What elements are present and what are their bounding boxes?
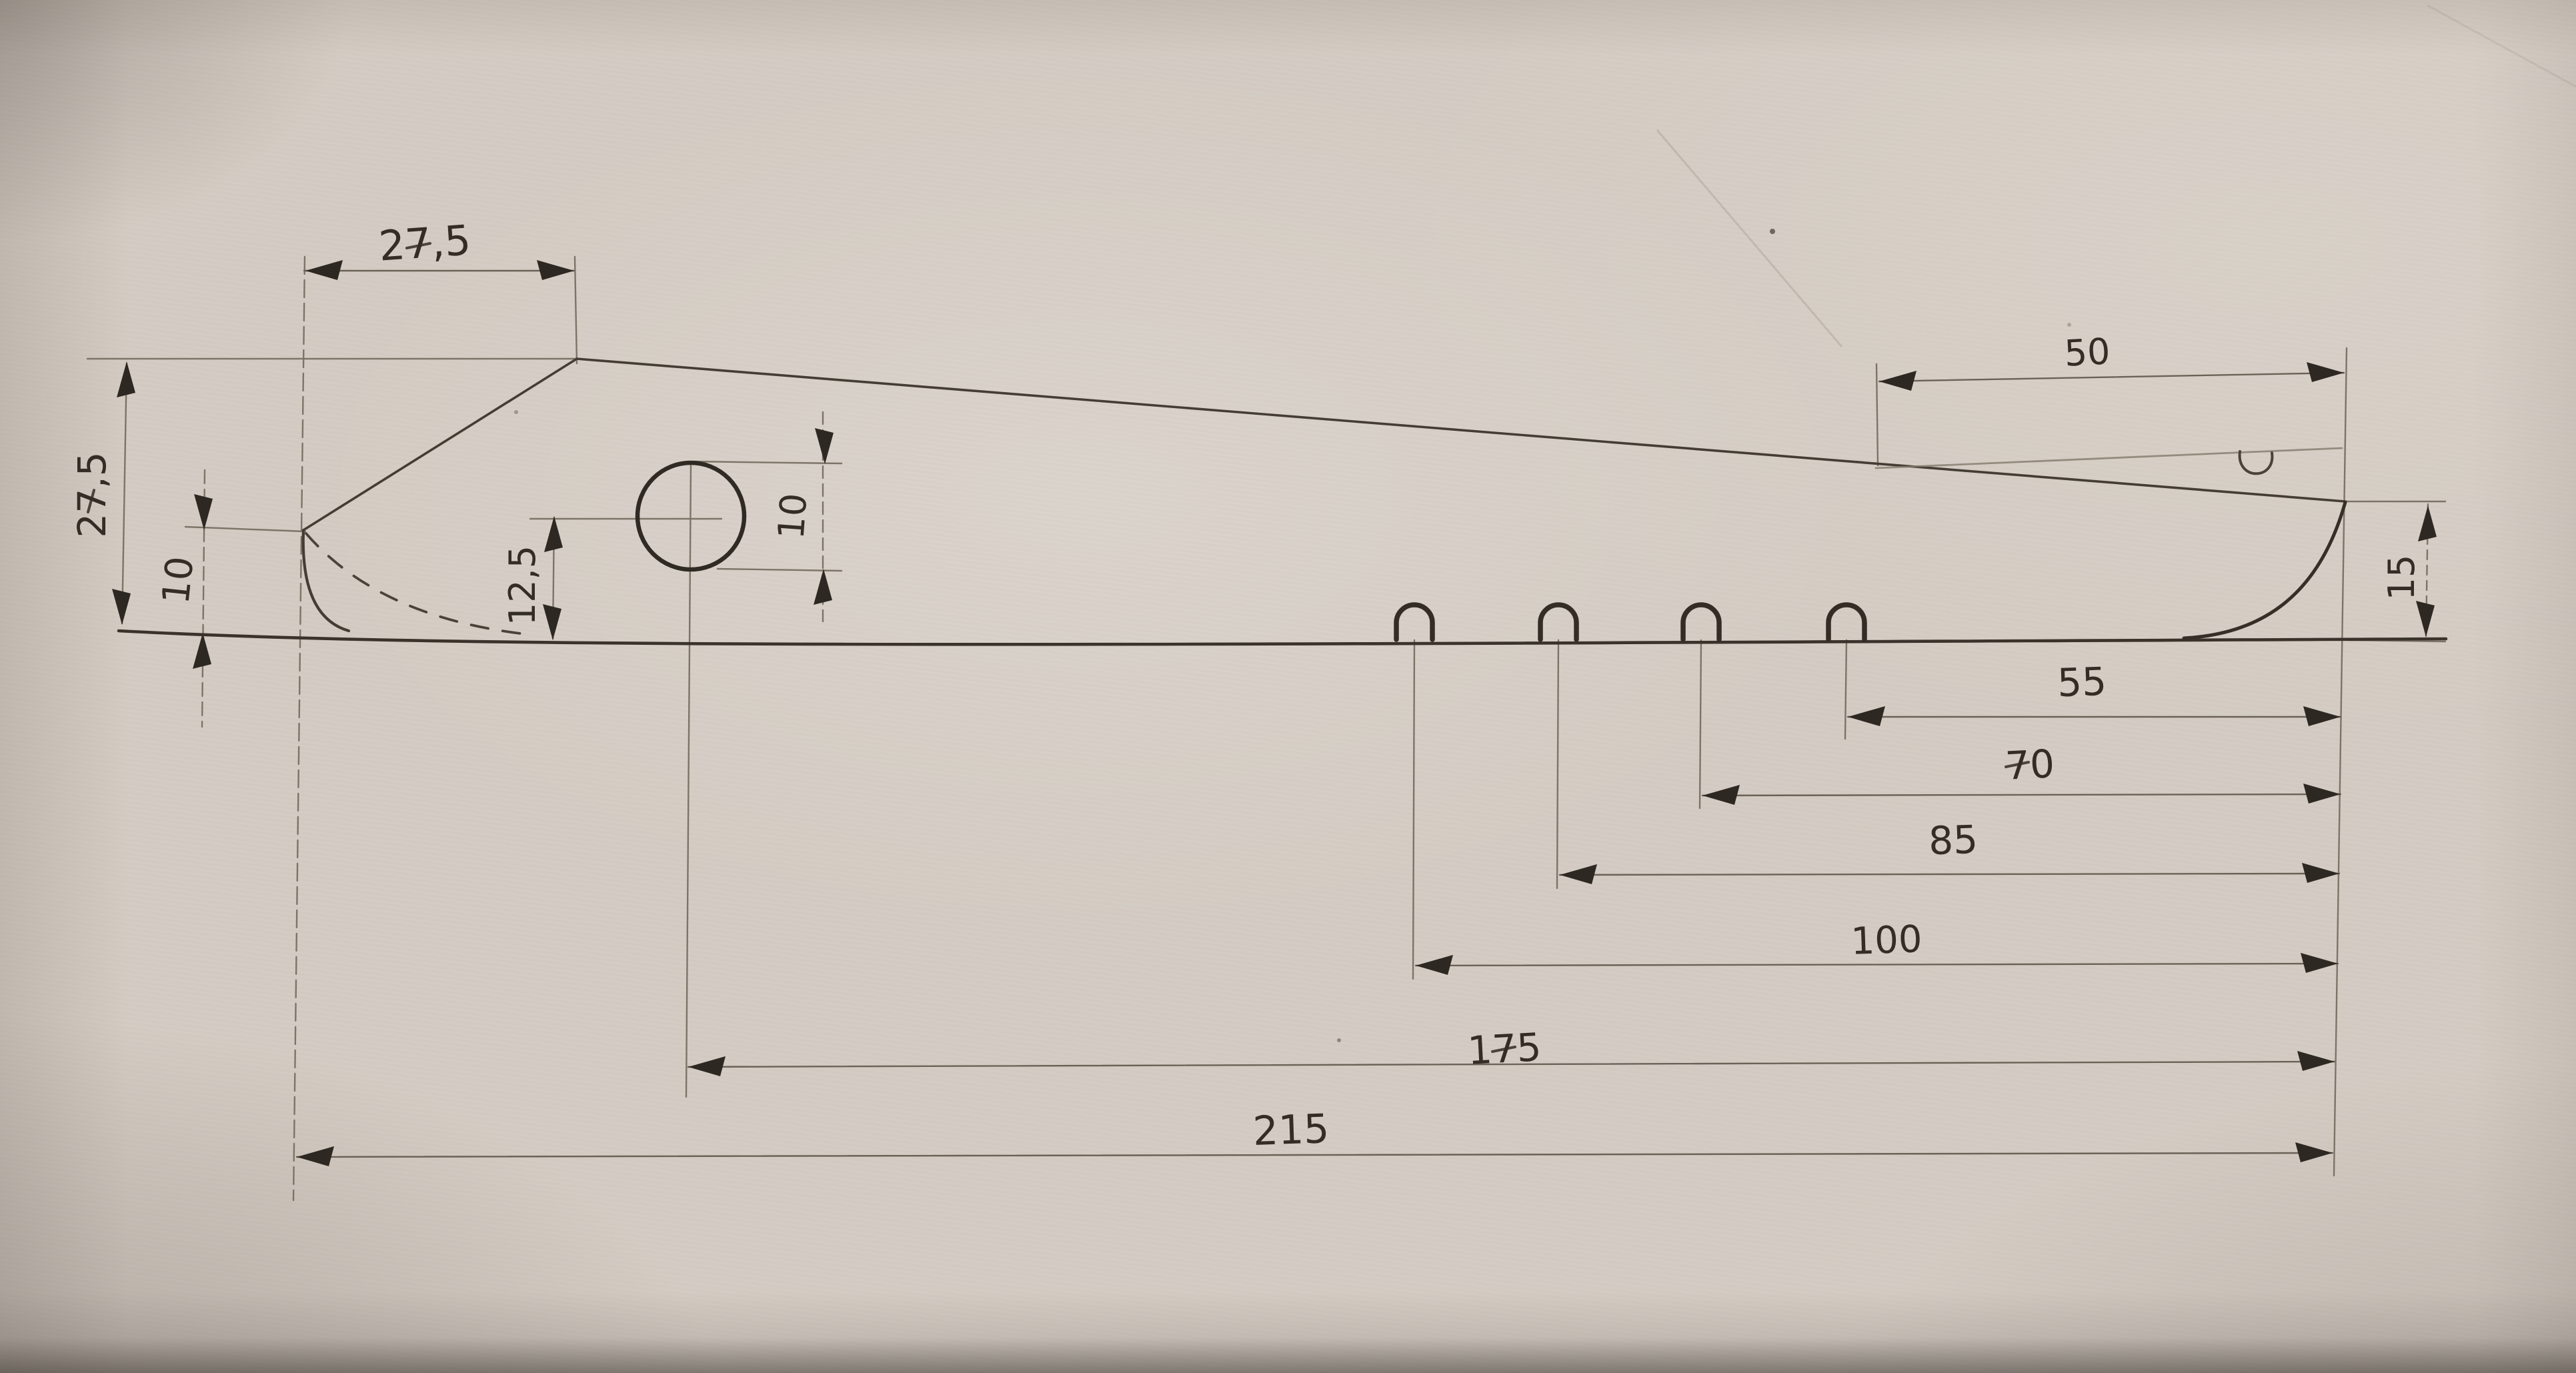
ext-right-edge-vertical <box>2334 348 2347 1176</box>
extension-lines <box>87 257 2445 1200</box>
arrow-left-height-down <box>112 589 131 625</box>
ext-slot-85 <box>1557 640 1558 888</box>
dim-slot-55-label: 55 <box>2057 659 2107 706</box>
stray-pencil-line <box>1657 130 1842 347</box>
dimension-lines <box>297 271 2344 1157</box>
ext-slot-55 <box>1845 640 1846 739</box>
arrow-50-left <box>1879 371 1916 391</box>
arrow-100-left <box>1416 955 1453 975</box>
paper-speck <box>1337 1038 1341 1042</box>
ext-slot-70 <box>1700 640 1701 808</box>
dim-overall-length-label: 215 <box>1252 1106 1330 1155</box>
drawing-svg: 27,5 27,5 10 12,5 10 50 15 55 70 85 100 … <box>0 0 2576 1373</box>
arrow-215-right <box>2295 1142 2333 1162</box>
ext-slot-100 <box>1413 640 1414 979</box>
ext-50-left-tick <box>1876 364 1878 465</box>
tip-corner-curve <box>303 530 349 631</box>
arrow-215-left <box>297 1146 334 1166</box>
dim-slot-85-label: 85 <box>1928 817 1979 864</box>
arrow-hole-offset-up <box>544 516 563 552</box>
dim-hole-offset-label: 12,5 <box>501 545 543 625</box>
right-end-curve <box>2184 502 2345 638</box>
top-edge-line <box>577 359 2345 501</box>
ext-peak-vertical <box>575 257 577 363</box>
paper-crease <box>2427 5 2576 87</box>
dim-top-width-label: 27,5 <box>377 215 473 270</box>
part-outline <box>119 359 2446 644</box>
arrow-top-width-left <box>305 260 343 280</box>
arrow-50-right <box>2307 362 2344 382</box>
tip-bevel-dashed-curve <box>306 533 532 635</box>
paper-speck <box>514 410 518 414</box>
ext-hole-bottom-tick <box>718 569 842 571</box>
dimension-labels: 27,5 27,5 10 12,5 10 50 15 55 70 85 100 … <box>69 215 2423 1155</box>
dim-line-right-top-length <box>1879 373 2344 381</box>
dim-line-100 <box>1416 964 2338 966</box>
arrow-hole-dia-down <box>815 428 834 464</box>
slot-4 <box>1828 605 1864 639</box>
dim-right-top-length-label: 50 <box>2063 330 2111 375</box>
slot-1 <box>1396 605 1432 639</box>
slot-2 <box>1540 605 1576 639</box>
ext-hole-top-tick <box>694 461 842 463</box>
arrow-left-height-up <box>117 361 135 397</box>
bottom-edge-line <box>119 631 2446 644</box>
arrow-70-right <box>2303 784 2341 804</box>
dim-slot-100-label: 100 <box>1850 918 1923 964</box>
arrow-tip-height-down <box>194 494 213 530</box>
right-notch-u <box>2240 451 2273 473</box>
arrow-85-left <box>1560 864 1597 884</box>
dim-line-85 <box>1560 874 2339 875</box>
arrow-tip-height-up <box>193 633 211 669</box>
arrow-175-left <box>688 1056 726 1076</box>
arrow-175-right <box>2297 1051 2335 1071</box>
ext-left-tip-vertical <box>293 257 305 1200</box>
dim-line-70 <box>1702 794 2341 796</box>
tip-to-peak-edge <box>303 359 577 530</box>
arrow-85-right <box>2302 863 2339 883</box>
arrow-hole-dia-up <box>814 569 832 605</box>
dim-line-left-height <box>122 363 127 623</box>
dim-right-end-height-label: 15 <box>2381 555 2423 601</box>
dim-tip-height-label: 10 <box>154 554 202 606</box>
arrow-55-left <box>1848 706 1885 726</box>
paper-speck <box>1770 229 1775 234</box>
arrow-55-right <box>2303 706 2341 726</box>
slot-3 <box>1683 605 1719 639</box>
arrow-15-down <box>2416 601 2435 637</box>
paper-speck <box>2067 323 2071 327</box>
arrow-70-left <box>1702 785 1740 805</box>
arrow-15-up <box>2418 505 2437 541</box>
seven-crossbars <box>88 243 2029 1052</box>
arrow-100-right <box>2301 953 2338 973</box>
arrowheads <box>112 260 2437 1166</box>
dim-hole-diameter-label: 10 <box>770 492 816 541</box>
arrow-top-width-right <box>537 260 574 280</box>
dim-line-215 <box>297 1153 2333 1157</box>
ext-hole-vertical-centerline <box>686 465 691 1097</box>
arrow-hole-offset-down <box>543 604 561 640</box>
